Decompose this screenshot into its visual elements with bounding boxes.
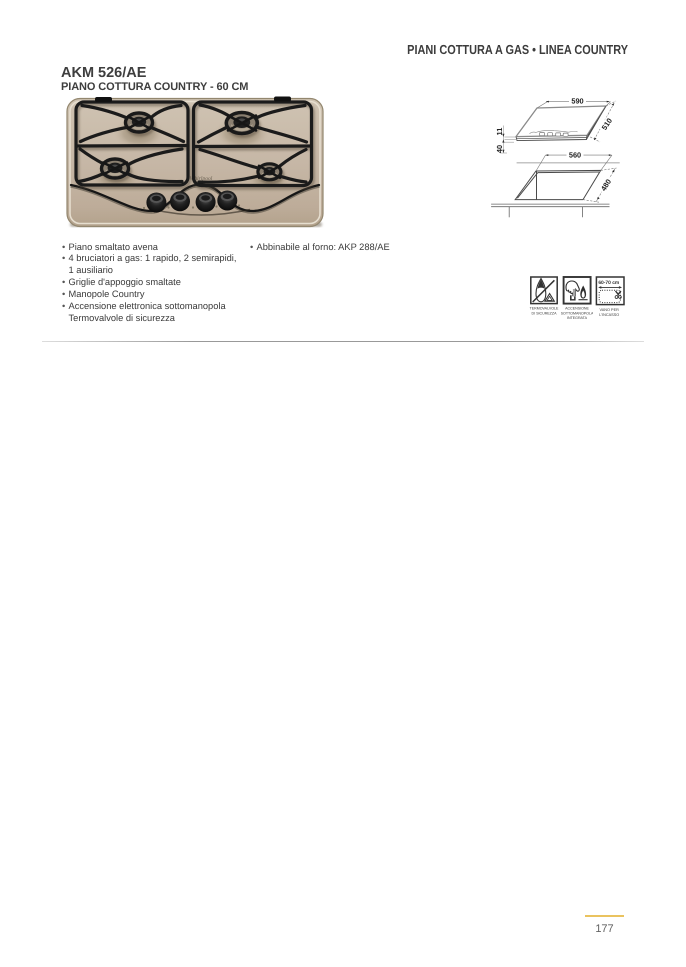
svg-text:TERMOVALVOLE: TERMOVALVOLE [530,307,559,311]
svg-text:40: 40 [495,145,504,153]
svg-text:DI SICUREZZA: DI SICUREZZA [532,311,558,315]
svg-text:INTEGRATA: INTEGRATA [567,316,588,320]
svg-text:590: 590 [571,97,583,106]
svg-text:L'INCASSO: L'INCASSO [599,313,619,317]
svg-text:ACCENSIONE: ACCENSIONE [565,307,589,311]
svg-text:60-70 cm: 60-70 cm [598,280,620,286]
svg-text:11: 11 [495,128,504,136]
svg-text:560: 560 [569,150,581,159]
svg-text:VANO PER: VANO PER [600,308,620,312]
svg-text:SOTTOMANOPOLA: SOTTOMANOPOLA [561,311,593,315]
